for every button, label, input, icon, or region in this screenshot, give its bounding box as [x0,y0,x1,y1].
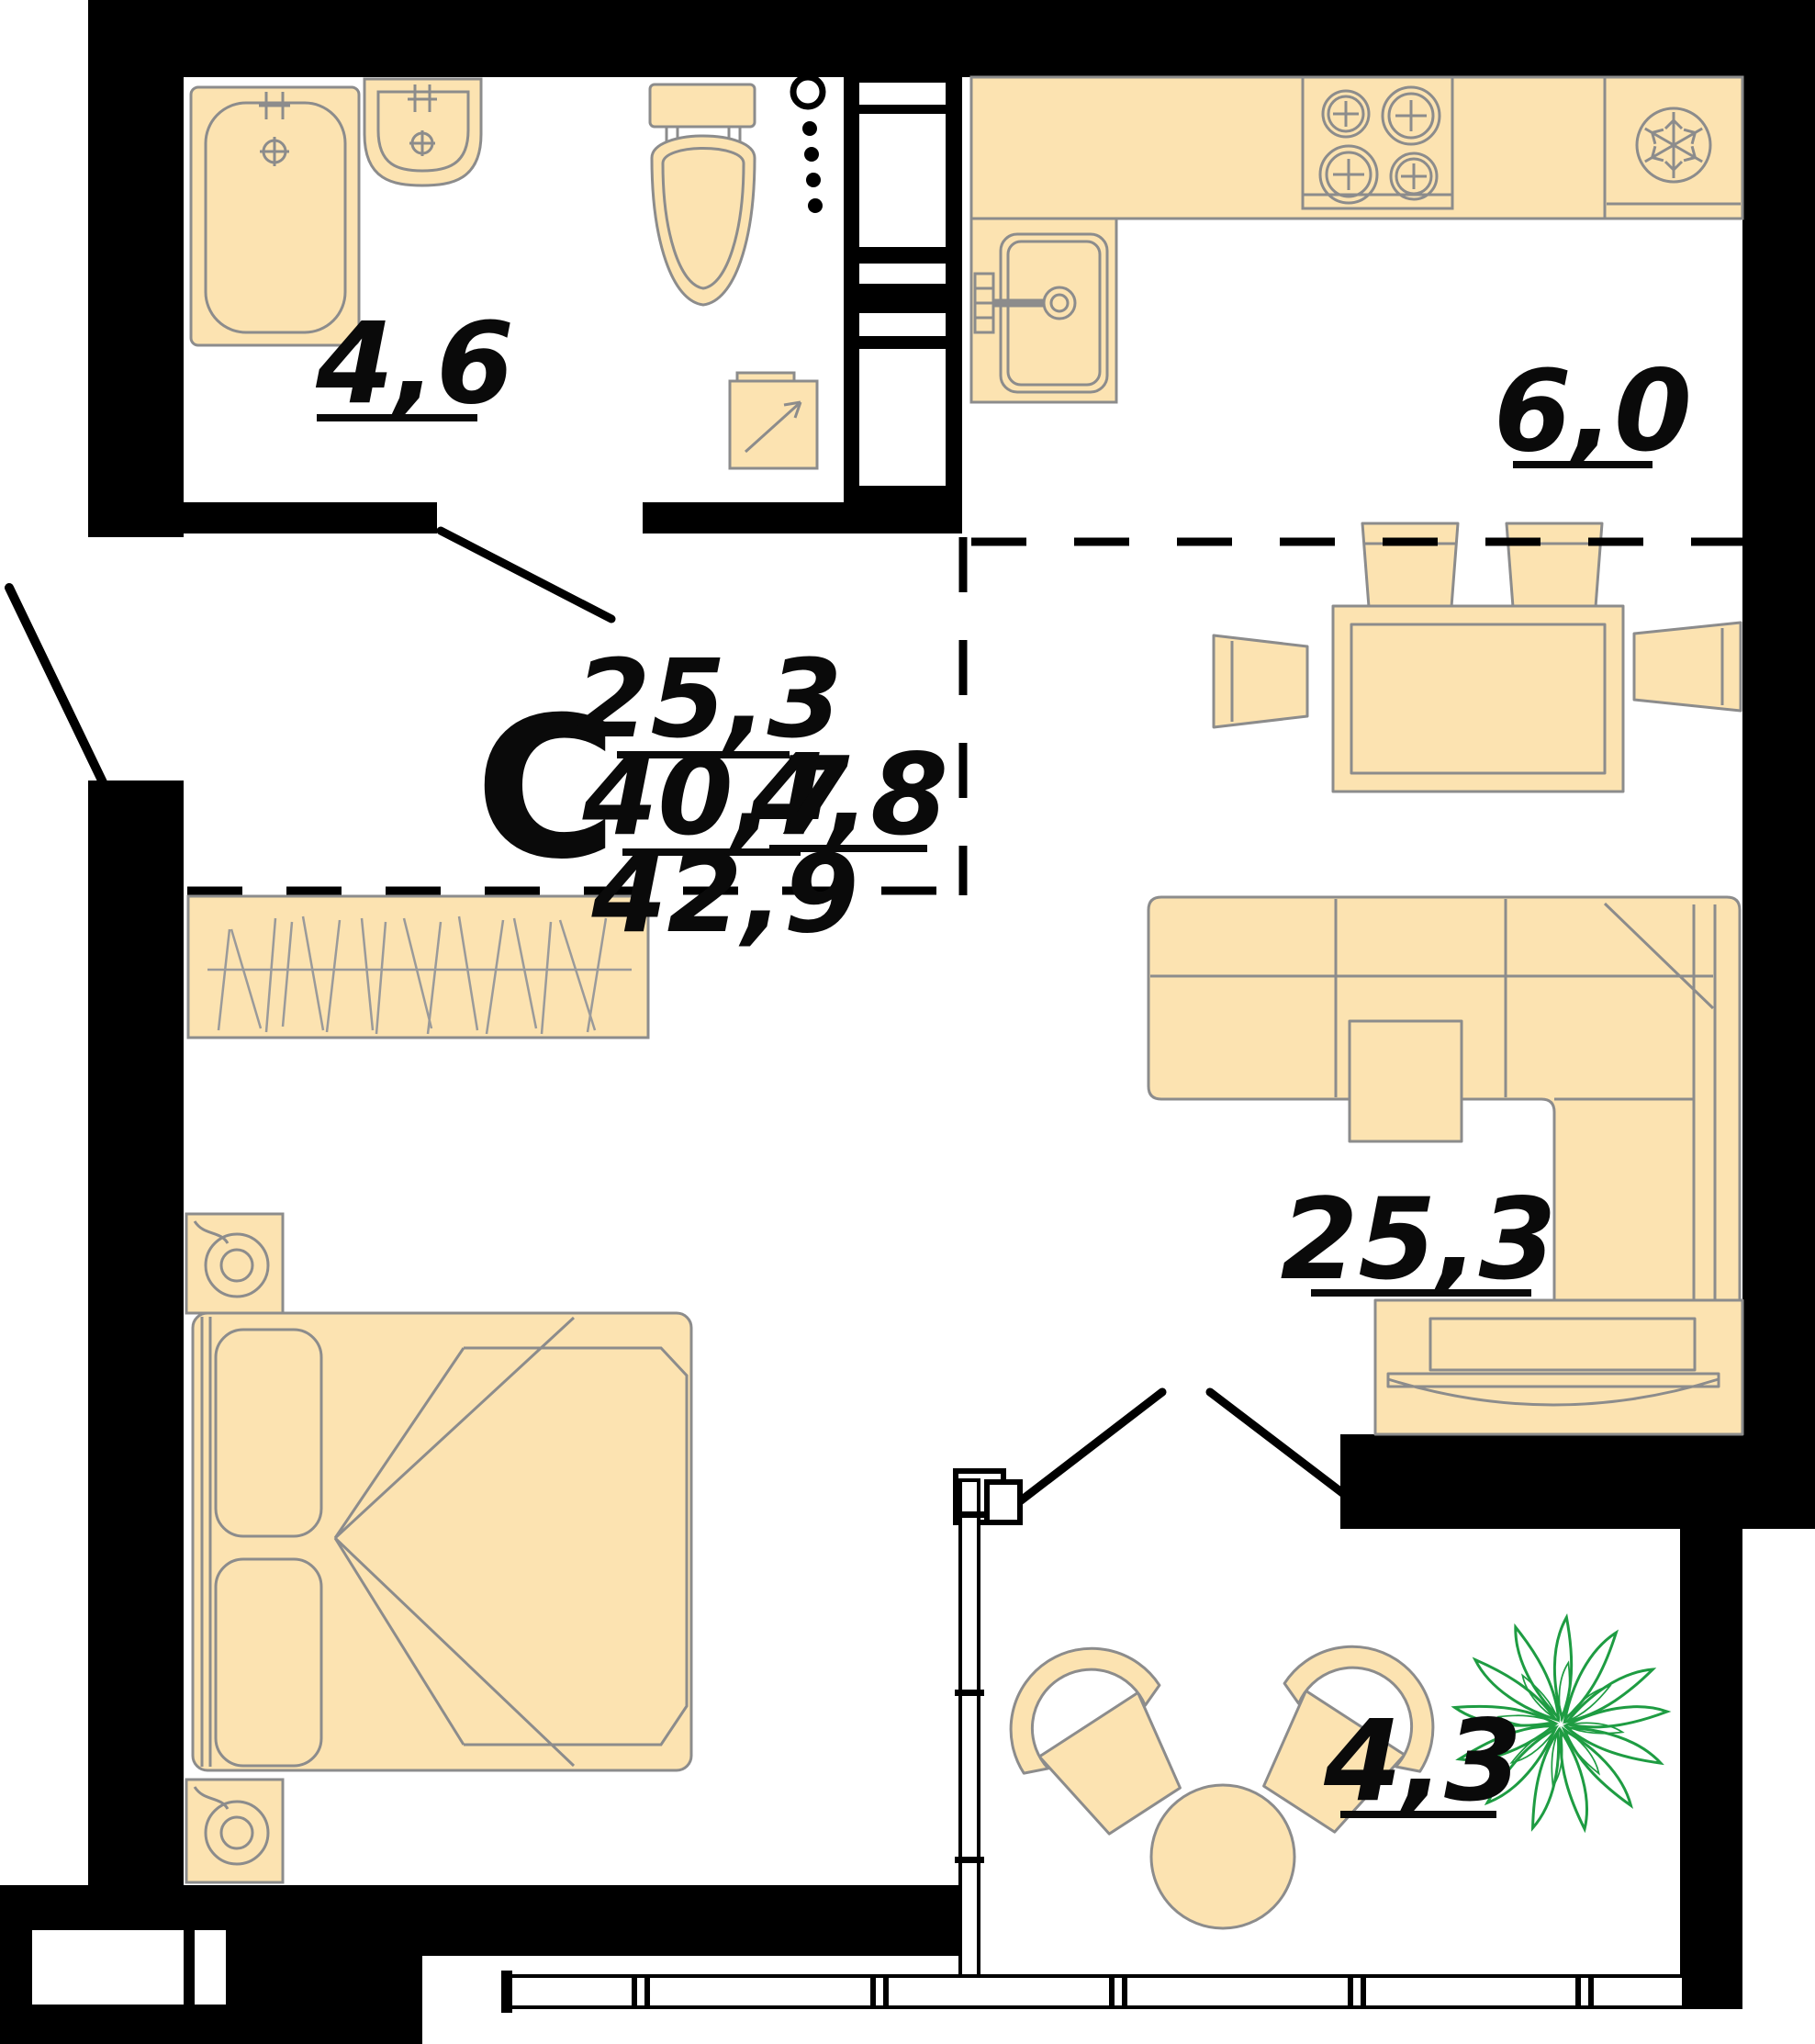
kitchen-area-label: 6,0 [1494,346,1692,477]
riser-pipes-icon [793,77,823,213]
dining-chair-left [1214,635,1307,727]
wardrobe [188,896,648,1038]
wall-right [1742,77,1815,1437]
living-room [1148,897,1742,1434]
floor-plan-canvas: 4,6 6,0 4,8 25,3 4,3 С 25,3 40,7 42,9 [0,0,1815,2044]
entry-door-leaf [9,588,103,782]
balcony-door-leaf-right [1210,1392,1345,1495]
wall-facade-bottom [422,1885,960,1956]
summary-total-area: 42,9 [590,830,858,957]
bed [193,1313,691,1770]
bathroom-sink [364,79,481,185]
bathroom-area-label: 4,6 [315,298,514,429]
wall-left-upper [88,77,184,537]
wall-bath-bottom-right [643,502,844,533]
nightstand-top [186,1214,283,1313]
wall-top [88,0,1815,77]
tv-console [1375,1300,1742,1434]
living-room-area-label: 25,3 [1280,1174,1556,1305]
dining-set [1214,523,1741,792]
balcony-area-label: 4,3 [1323,1696,1522,1826]
nightstand-bottom [186,1780,283,1882]
wall-left-lower [88,781,184,1885]
toilet [650,84,755,305]
balcony-door-leaf-left [1004,1392,1162,1513]
dining-chair-right [1634,623,1741,711]
dining-table [1333,606,1623,792]
wall-bath-bottom-left [184,502,437,533]
wall-balcony-right [1680,1529,1742,2009]
ottoman [1350,1021,1462,1141]
bedroom [186,1214,691,1882]
washing-machine [730,373,817,468]
stove [1303,77,1452,208]
fridge [1605,77,1742,219]
lobby-niches [32,1930,226,2005]
bathroom-door-leaf [441,531,611,619]
floor-plan-svg: 4,6 6,0 4,8 25,3 4,3 С 25,3 40,7 42,9 [0,0,1815,2044]
wall-living-balcony [1340,1434,1815,1529]
balcony-table [1151,1785,1294,1928]
